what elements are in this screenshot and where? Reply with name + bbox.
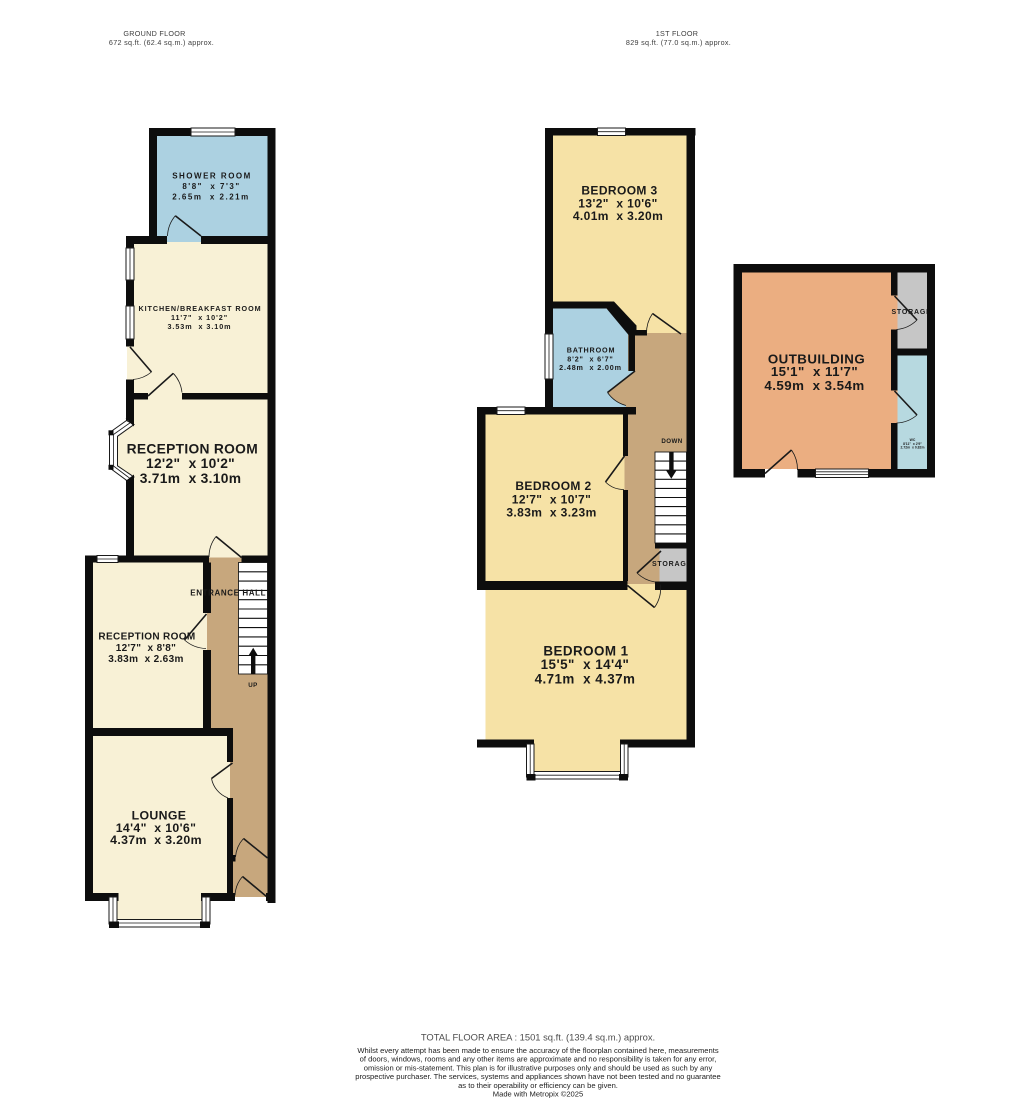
svg-text:Made with Metropix ©2025: Made with Metropix ©2025 xyxy=(493,1090,583,1099)
svg-text:2.72m x 0.82m: 2.72m x 0.82m xyxy=(901,446,925,450)
svg-text:BEDROOM 2: BEDROOM 2 xyxy=(515,479,591,493)
svg-text:prospective purchaser. The ser: prospective purchaser. The services, sys… xyxy=(355,1072,720,1081)
svg-text:4.71m x 4.37m: 4.71m x 4.37m xyxy=(535,672,636,687)
svg-text:of doors, windows, rooms and a: of doors, windows, rooms and any other i… xyxy=(360,1055,717,1064)
svg-text:2.48m x 2.00m: 2.48m x 2.00m xyxy=(559,363,622,372)
svg-text:11'7" x 10'2": 11'7" x 10'2" xyxy=(171,313,228,322)
svg-text:3.83m x 2.63m: 3.83m x 2.63m xyxy=(108,654,184,665)
svg-text:UP: UP xyxy=(248,682,257,689)
svg-text:RECEPTION ROOM: RECEPTION ROOM xyxy=(127,442,258,457)
svg-text:3.71m x 3.10m: 3.71m x 3.10m xyxy=(140,471,242,486)
svg-text:BATHROOM: BATHROOM xyxy=(567,346,616,355)
svg-text:8'2" x 6'7": 8'2" x 6'7" xyxy=(567,355,613,364)
svg-text:3.83m x 3.23m: 3.83m x 3.23m xyxy=(506,506,596,520)
svg-text:DOWN: DOWN xyxy=(661,438,682,445)
svg-text:Whilst every attempt has been: Whilst every attempt has been made to en… xyxy=(357,1046,719,1055)
svg-text:4.01m x 3.20m: 4.01m x 3.20m xyxy=(573,209,663,223)
svg-text:3.53m x 3.10m: 3.53m x 3.10m xyxy=(167,322,231,331)
svg-text:1ST FLOOR: 1ST FLOOR xyxy=(656,29,699,38)
svg-text:4.37m x 3.20m: 4.37m x 3.20m xyxy=(110,833,202,847)
svg-text:12'7" x 8'8": 12'7" x 8'8" xyxy=(116,643,177,654)
svg-text:672 sq.ft. (62.4 sq.m.) approx: 672 sq.ft. (62.4 sq.m.) approx. xyxy=(109,38,214,47)
svg-text:as to their operability or eff: as to their operability or efficiency ca… xyxy=(458,1081,618,1090)
svg-text:STORAGE: STORAGE xyxy=(652,561,692,568)
svg-text:omission or mis-statement. Thi: omission or mis-statement. This plan is … xyxy=(364,1063,713,1072)
svg-text:12'7" x 10'7": 12'7" x 10'7" xyxy=(512,493,591,507)
svg-text:ENTRANCE HALL: ENTRANCE HALL xyxy=(190,589,266,598)
svg-text:829 sq.ft. (77.0 sq.m.) approx: 829 sq.ft. (77.0 sq.m.) approx. xyxy=(626,38,731,47)
svg-text:RECEPTION ROOM: RECEPTION ROOM xyxy=(98,632,195,643)
svg-text:TOTAL FLOOR AREA : 1501 sq.ft.: TOTAL FLOOR AREA : 1501 sq.ft. (139.4 sq… xyxy=(421,1032,655,1043)
svg-text:15'5" x 14'4": 15'5" x 14'4" xyxy=(541,657,630,672)
svg-text:KITCHEN/BREAKFAST ROOM: KITCHEN/BREAKFAST ROOM xyxy=(138,304,261,313)
svg-text:12'2" x 10'2": 12'2" x 10'2" xyxy=(146,456,235,471)
svg-text:8'8" x 7'3": 8'8" x 7'3" xyxy=(182,182,240,191)
svg-text:SHOWER ROOM: SHOWER ROOM xyxy=(172,172,252,181)
svg-text:15'1" x 11'7": 15'1" x 11'7" xyxy=(771,364,858,379)
svg-text:4.59m x 3.54m: 4.59m x 3.54m xyxy=(764,378,864,393)
svg-text:GROUND FLOOR: GROUND FLOOR xyxy=(123,29,185,38)
svg-text:2.65m x 2.21m: 2.65m x 2.21m xyxy=(172,193,249,202)
